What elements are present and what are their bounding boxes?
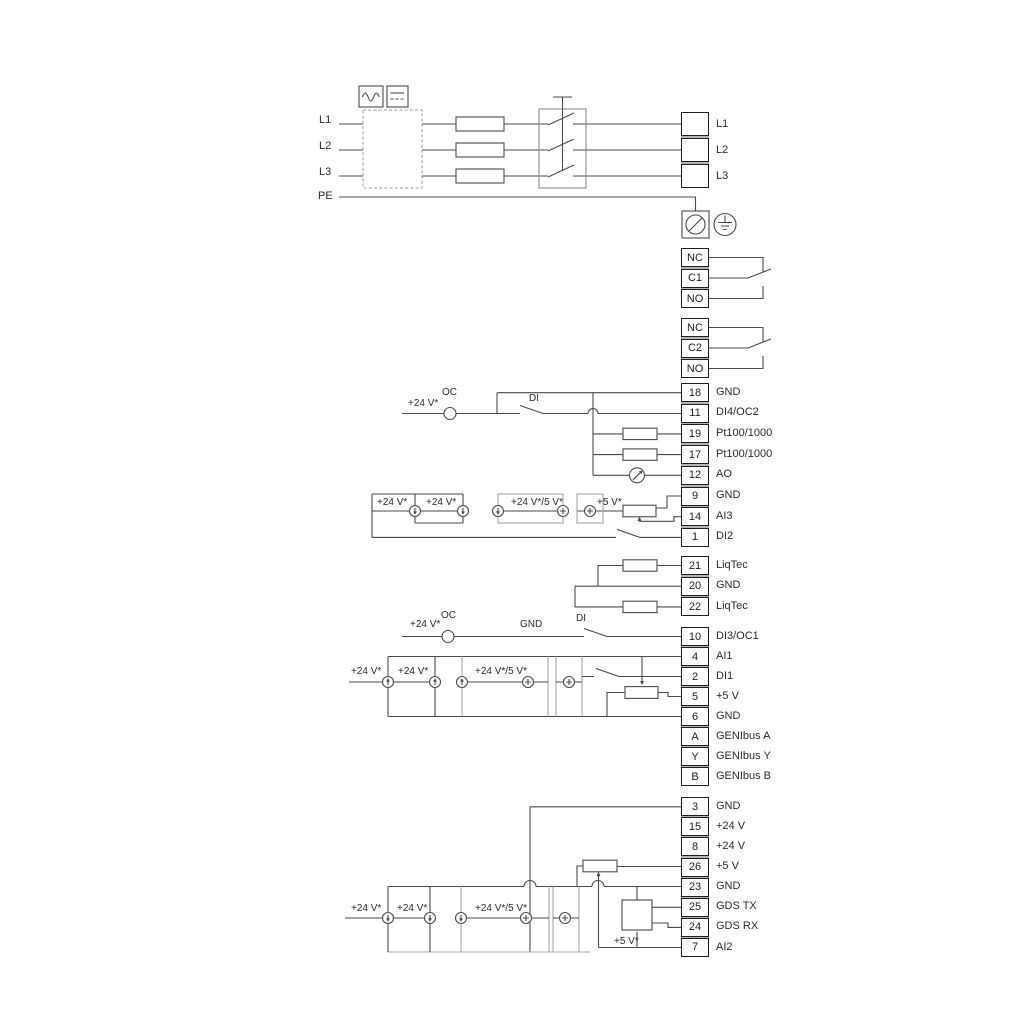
terminal-strip-d: 3 15 8 26 23 25 24 7 [681,797,709,957]
relay1-nc: NC [681,248,709,267]
dc-symbol-icon [387,86,408,107]
power-terminal-l3 [681,164,709,188]
relay2-terminals: NC C2 NO [681,318,709,378]
terminal-15: 15 [681,817,709,836]
schematic-lines [0,0,1024,1024]
terminal-label: Pt100/1000 [716,448,772,461]
v5-label: +5 V* [614,936,639,947]
relay1-c1: C1 [681,269,709,288]
terminal-4: 4 [681,647,709,666]
gnd-label: GND [520,619,542,630]
fuse-l3 [456,169,504,183]
terminal-2: 2 [681,667,709,686]
terminal-9: 9 [681,487,709,506]
power-terminal-block [681,112,709,188]
terminal-label: +24 V [716,820,745,833]
output-label-l3: L3 [716,170,728,183]
terminal-label: +5 V [716,860,739,873]
converter-filter-box [363,110,422,188]
pt100-resistor-19 [623,428,657,439]
terminal-17: 17 [681,445,709,464]
liqtec-circuit [575,560,681,613]
terminal-b: B [681,767,709,786]
terminal-y: Y [681,747,709,766]
potentiometer-ai1 [625,687,658,699]
terminal-20: 20 [681,577,709,596]
terminal-label: GND [716,489,740,502]
v24-label: +24 V* [426,497,456,508]
terminal-strip-b: 21 20 22 [681,556,709,616]
terminal-18: 18 [681,383,709,402]
input-label-l2: L2 [319,140,331,153]
terminal-label: DI2 [716,530,733,543]
potentiometer-ai3 [623,505,656,517]
input-label-l1: L1 [319,114,331,127]
terminal-21: 21 [681,556,709,575]
relay2-nc: NC [681,318,709,337]
di-label: DI [576,613,586,624]
terminal-label: +5 V [716,690,739,703]
input-label-pe: PE [318,190,333,203]
terminal-label: Pt100/1000 [716,427,772,440]
v24-label: +24 V* [351,903,381,914]
v24-label: +24 V* [351,666,381,677]
di4-oc2-circuit [402,393,681,483]
terminal-26: 26 [681,858,709,877]
terminal-label: GND [716,710,740,723]
terminal-19: 19 [681,424,709,443]
terminal-11: 11 [681,404,709,423]
v24-label: +24 V* [377,497,407,508]
v24-label: +24 V* [397,903,427,914]
fuse-l1 [456,117,504,131]
power-terminal-l1 [681,112,709,136]
v5-label: +5 V* [597,497,622,508]
terminal-14: 14 [681,507,709,526]
terminal-label: GND [716,880,740,893]
wiring-diagram: L1 L2 L3 PE L1 L2 L3 NC C1 NO NC C2 NO 1… [0,0,1024,1024]
terminal-1: 1 [681,528,709,547]
relay2-c2: C2 [681,339,709,358]
v24-5v-label: +24 V*/5 V* [475,666,527,677]
v24-5v-label: +24 V*/5 V* [511,497,563,508]
terminal-label: DI4/OC2 [716,406,759,419]
di1-switch [582,669,681,677]
terminal-label: GDS TX [716,900,757,913]
di-switch-di3 [584,629,681,637]
terminal-label: GND [716,800,740,813]
input-label-l3: L3 [319,166,331,179]
terminal-label: GDS RX [716,920,758,933]
liqtec-sensor-21 [623,560,657,571]
terminal-22: 22 [681,597,709,616]
terminal-8: 8 [681,837,709,856]
terminal-24: 24 [681,918,709,937]
gds-sensor-box [622,900,652,930]
pot-wiper-arrow-ai1 [640,681,644,685]
v24-label: +24 V* [410,619,440,630]
liqtec-sensor-22 [623,601,657,612]
terminal-6: 6 [681,707,709,726]
pt100-resistor-17 [623,449,657,460]
terminal-strip-c: 10 4 2 5 6 A Y B [681,627,709,786]
terminal-label: LiqTec [716,600,748,613]
relay1-no: NO [681,289,709,308]
di-label: DI [529,393,539,404]
terminal-5: 5 [681,687,709,706]
phase-wires [339,124,681,176]
relay2-no: NO [681,359,709,378]
terminal-a: A [681,727,709,746]
di3-oc1-circuit [402,629,681,643]
pe-wire [339,197,696,211]
terminal-label: GENIbus A [716,730,770,743]
v24-label: +24 V* [408,398,438,409]
oc-label: OC [441,610,456,621]
terminal-label: DI1 [716,670,733,683]
terminal-label: +24 V [716,840,745,853]
terminal-label: AI3 [716,510,733,523]
v24-label: +24 V* [398,666,428,677]
terminal-23: 23 [681,878,709,897]
terminal-25: 25 [681,898,709,917]
terminal-label: GENIbus B [716,770,771,783]
oc-label: OC [442,387,457,398]
terminal-10: 10 [681,627,709,646]
potentiometer-ai2 [583,860,617,872]
oc-circle-di3 [442,631,454,643]
terminal-7: 7 [681,938,709,957]
di2-switch [372,529,681,537]
power-section [339,86,736,238]
terminal-label: DI3/OC1 [716,630,759,643]
relay1-terminals: NC C1 NO [681,248,709,308]
relay2-contact [709,328,771,369]
oc-circle-di4 [444,408,456,420]
power-terminal-l2 [681,138,709,162]
terminal-label: GND [716,386,740,399]
terminal-label: AO [716,468,732,481]
terminal-label: GND [716,579,740,592]
output-label-l1: L1 [716,118,728,131]
terminal-label: AI2 [716,941,733,954]
terminal-3: 3 [681,797,709,816]
fuse-l2 [456,143,504,157]
terminal-label: AI1 [716,650,733,663]
v24-5v-label: +24 V*/5 V* [475,903,527,914]
terminal-label: GENIbus Y [716,750,771,763]
terminal-12: 12 [681,466,709,485]
relay1-contact [709,258,771,299]
terminal-strip-a: 18 11 19 17 12 9 14 1 [681,383,709,547]
terminal-label: LiqTec [716,559,748,572]
di-switch-di4 [497,406,588,414]
ai2-gds-circuit [345,807,681,952]
output-label-l2: L2 [716,144,728,157]
